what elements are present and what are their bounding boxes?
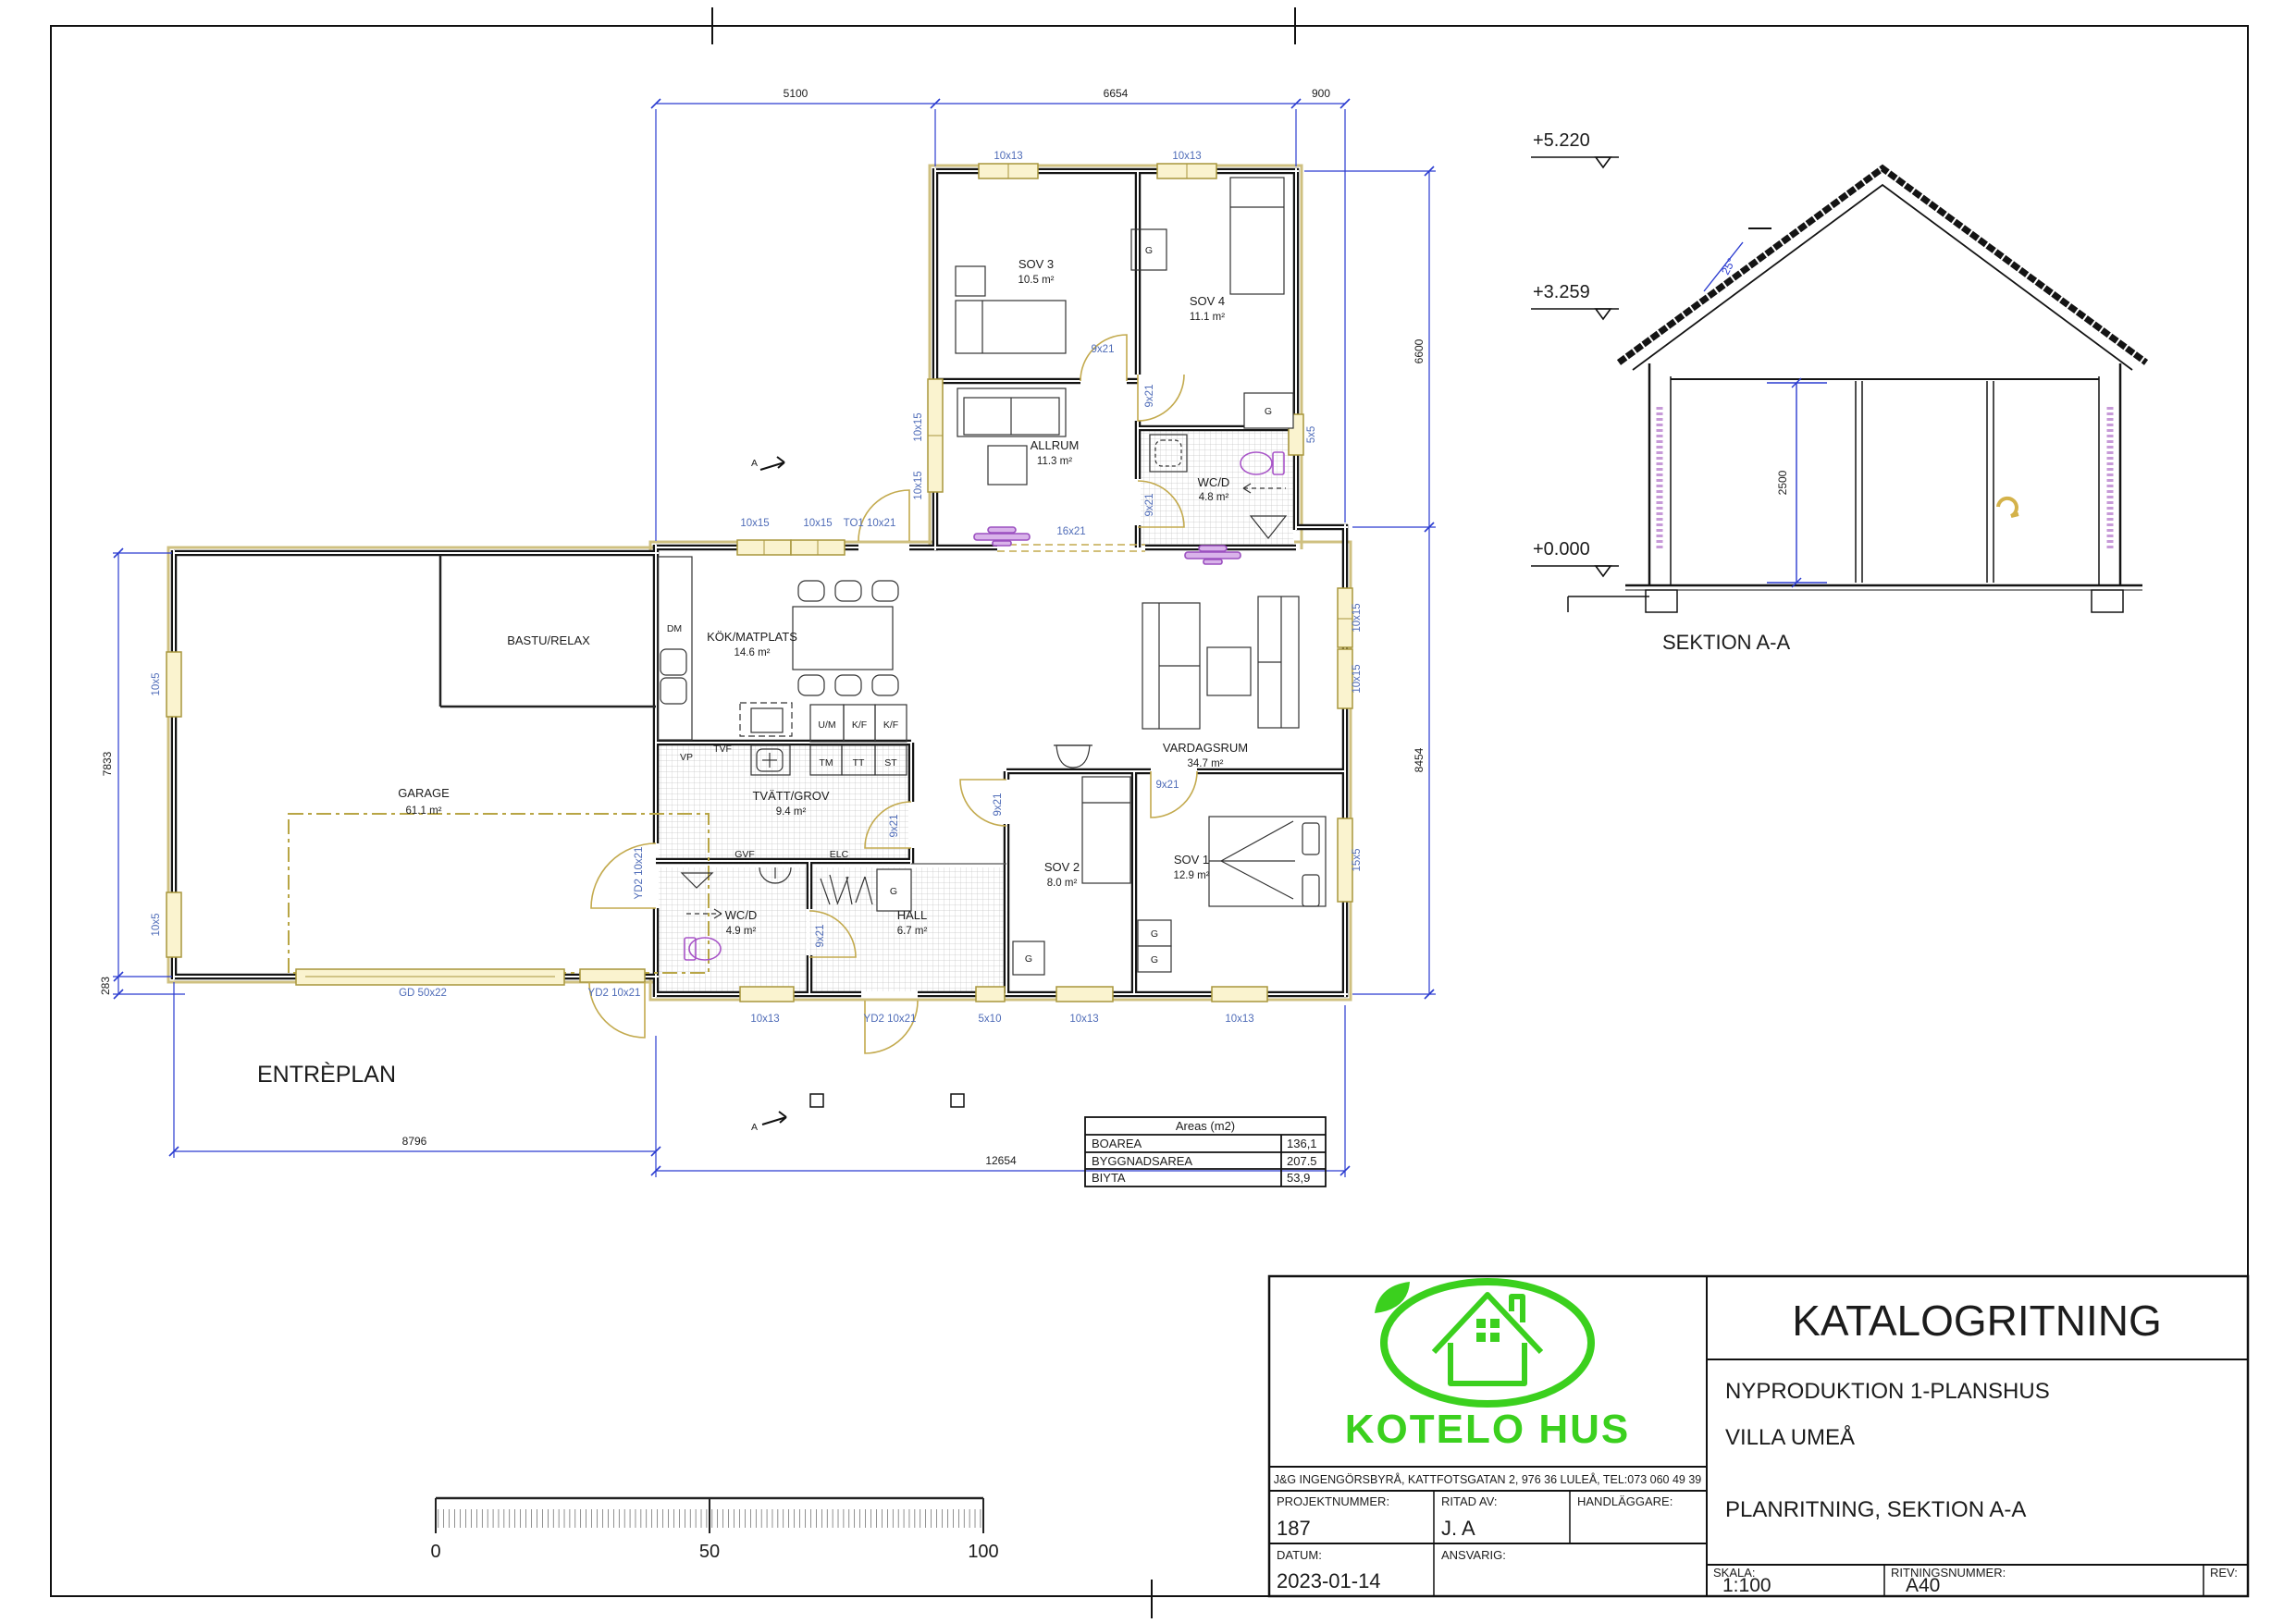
closet-g: G — [1151, 954, 1158, 965]
label-10x15: 10x15 — [913, 412, 924, 441]
dim-12654: 12654 — [985, 1154, 1017, 1167]
room-vardagsrum-area: 34.7 m² — [1188, 758, 1224, 769]
label-tt: TT — [853, 757, 865, 768]
areas-row-value: 207.5 — [1287, 1154, 1317, 1168]
dim-2500: 2500 — [1776, 470, 1789, 495]
room-sov2-area: 8.0 m² — [1047, 878, 1078, 889]
window-5x10 — [976, 987, 1005, 1002]
wall-insulation — [1660, 407, 2110, 550]
roof-tiles — [1619, 168, 2146, 363]
company-address: J&G INGENGÖRSBYRÅ, KATTFOTSGATAN 2, 976 … — [1274, 1472, 1702, 1486]
ansvarig-label: ANSVARIG: — [1441, 1548, 1506, 1562]
logo-text: KOTELO HUS — [1345, 1407, 1630, 1452]
label-dm: DM — [667, 623, 682, 634]
dim-6654: 6654 — [1104, 87, 1129, 100]
floor-plan: A A SOV 3 10.5 m² SOV 4 11.1 m² ALLRUM 1… — [99, 87, 1436, 1177]
logo-house-icon — [1434, 1295, 1541, 1383]
room-sov1-area: 12.9 m² — [1174, 870, 1210, 881]
room-wcd-lower-area: 4.9 m² — [726, 926, 757, 937]
room-wcd-lower: WC/D — [725, 908, 758, 922]
label-10x15: 10x15 — [803, 518, 832, 529]
room-sov3: SOV 3 — [1018, 257, 1054, 271]
title-block: KOTELO HUS J&G INGENGÖRSBYRÅ, KATTFOTSGA… — [1269, 1276, 2248, 1596]
section-view: +5.220 +3.259 +0.000 2500 25° SEKTION A-… — [1531, 130, 2146, 654]
company-logo: KOTELO HUS — [1345, 1282, 1630, 1452]
section-mark-a-top: A — [751, 458, 758, 469]
drawing-type-title: KATALOGRITNING — [1792, 1297, 2162, 1345]
label-15x5: 15x5 — [1352, 849, 1363, 872]
room-sov1: SOV 1 — [1174, 853, 1209, 867]
label-9x21: 9x21 — [1156, 780, 1179, 791]
footing — [2092, 590, 2123, 612]
level-ground: +0.000 — [1533, 539, 1590, 559]
dim-900: 900 — [1312, 87, 1330, 100]
areas-row-label: BYGGNADSAREA — [1092, 1154, 1192, 1168]
plan-title: ENTRÈPLAN — [257, 1061, 396, 1088]
room-sov4: SOV 4 — [1190, 294, 1225, 308]
footing — [1646, 590, 1677, 612]
room-tvatt-area: 9.4 m² — [776, 806, 807, 818]
label-10x5: 10x5 — [151, 673, 162, 696]
dim-6600: 6600 — [1413, 338, 1426, 363]
rev-label: REV: — [2210, 1566, 2238, 1580]
areas-row-label: BOAREA — [1092, 1137, 1142, 1150]
areas-table: Areas (m2) BOAREA 136,1 BYGGNADSAREA 207… — [1085, 1117, 1326, 1187]
label-yd2: YD2 10x21 — [864, 1014, 917, 1025]
label-kf: K/F — [883, 719, 898, 731]
label-tm: TM — [819, 757, 833, 768]
subtitle-line2: VILLA UMEÅ — [1725, 1424, 1855, 1450]
logo-house-windows — [1476, 1319, 1500, 1342]
label-10x13: 10x13 — [1069, 1014, 1098, 1025]
ritad-av-label: RITAD AV: — [1441, 1494, 1497, 1508]
room-vardagsrum: VARDAGSRUM — [1163, 741, 1248, 755]
label-9x21: 9x21 — [815, 925, 826, 948]
room-garage: GARAGE — [398, 786, 450, 800]
closet-g: G — [890, 886, 897, 897]
areas-title: Areas (m2) — [1176, 1119, 1235, 1133]
label-vp: VP — [680, 752, 693, 763]
label-kf: K/F — [852, 719, 867, 731]
window-10x13 — [1056, 987, 1113, 1002]
label-10x15: 10x15 — [913, 471, 924, 499]
label-10x15: 10x15 — [1352, 664, 1363, 693]
label-10x13: 10x13 — [750, 1014, 779, 1025]
label-gvf: GVF — [734, 849, 755, 860]
room-tvatt: TVÄTT/GROV — [752, 789, 829, 803]
vent-curl — [1998, 498, 2018, 516]
room-sov3-area: 10.5 m² — [1018, 275, 1055, 286]
label-to1: TO1 10x21 — [844, 518, 896, 529]
handlaggare-label: HANDLÄGGARE: — [1577, 1494, 1673, 1508]
room-allrum-area: 11.3 m² — [1037, 456, 1072, 467]
dim-7833: 7833 — [101, 751, 114, 776]
label-5x5: 5x5 — [1306, 426, 1317, 444]
label-9x21: 9x21 — [889, 815, 900, 838]
label-10x13: 10x13 — [994, 151, 1022, 162]
label-9x21: 9x21 — [1092, 344, 1115, 355]
dim-283: 283 — [99, 977, 112, 995]
dim-5100: 5100 — [784, 87, 809, 100]
room-kok-area: 14.6 m² — [734, 647, 771, 658]
label-10x15: 10x15 — [1352, 603, 1363, 632]
ritningsnummer-value: A40 — [1906, 1575, 1940, 1596]
datum-value: 2023-01-14 — [1277, 1569, 1381, 1592]
room-bastu: BASTU/RELAX — [507, 633, 590, 647]
label-5x10: 5x10 — [979, 1014, 1002, 1025]
room-hall-area: 6.7 m² — [897, 926, 928, 937]
door-yd2-south — [865, 1001, 918, 1053]
skala-value: 1:100 — [1722, 1575, 1771, 1596]
label-10x13: 10x13 — [1225, 1014, 1253, 1025]
window-10x5 — [167, 652, 181, 717]
label-yd2: YD2 10x21 — [634, 847, 645, 900]
projektnummer-label: PROJEKTNUMMER: — [1277, 1494, 1389, 1508]
closet-g: G — [1151, 928, 1158, 940]
window-10x15 — [1338, 588, 1352, 647]
room-wcd-upper: WC/D — [1198, 475, 1230, 489]
door-leaf-yd2 — [580, 969, 645, 982]
label-9x21: 9x21 — [1144, 494, 1155, 517]
room-kok: KÖK/MATPLATS — [707, 630, 797, 644]
areas-row-value: 53,9 — [1287, 1171, 1310, 1185]
label-elc: ELC — [830, 849, 849, 860]
drawing-canvas: A A SOV 3 10.5 m² SOV 4 11.1 m² ALLRUM 1… — [0, 0, 2296, 1623]
subtitle-line3: PLANRITNING, SEKTION A-A — [1725, 1497, 2026, 1522]
scale-100: 100 — [968, 1542, 998, 1562]
label-um: U/M — [818, 719, 835, 731]
level-markers: +5.220 +3.259 +0.000 — [1531, 130, 1619, 576]
label-16x21: 16x21 — [1056, 526, 1085, 537]
areas-row-value: 136,1 — [1287, 1137, 1317, 1150]
room-wcd-upper-area: 4.8 m² — [1199, 492, 1229, 503]
label-tvf: TVF — [713, 744, 732, 755]
label-gd: GD 50x22 — [399, 988, 447, 999]
label-10x5: 10x5 — [151, 914, 162, 937]
dim-8454: 8454 — [1413, 747, 1426, 772]
garage-floor — [176, 555, 654, 975]
scale-bar: 0 50 100 — [430, 1498, 998, 1562]
porch-post — [810, 1094, 823, 1107]
window-10x13 — [740, 987, 794, 1002]
door-to1-entry — [858, 490, 909, 541]
room-sov2: SOV 2 — [1044, 860, 1080, 874]
projektnummer-value: 187 — [1277, 1517, 1311, 1540]
label-st: ST — [884, 757, 897, 768]
label-10x15: 10x15 — [740, 518, 769, 529]
window-10x15 — [1338, 649, 1352, 708]
label-yd2: YD2 10x21 — [588, 988, 641, 999]
room-allrum: ALLRUM — [1031, 438, 1080, 452]
section-mark-a-bottom: A — [751, 1122, 758, 1133]
scale-50: 50 — [699, 1542, 720, 1562]
window-10x13 — [1212, 987, 1267, 1002]
areas-row-label: BIYTA — [1092, 1171, 1126, 1185]
label-9x21: 9x21 — [1144, 385, 1155, 408]
closet-g: G — [1145, 245, 1153, 256]
datum-label: DATUM: — [1277, 1548, 1322, 1562]
label-10x13: 10x13 — [1172, 151, 1201, 162]
porch-post — [951, 1094, 964, 1107]
dim-8796: 8796 — [402, 1135, 427, 1148]
room-sov4-area: 11.1 m² — [1190, 312, 1225, 323]
room-garage-area: 61.1 m² — [406, 805, 442, 817]
level-top: +5.220 — [1533, 130, 1590, 151]
closet-g: G — [1025, 953, 1032, 965]
drawing-sheet: A A SOV 3 10.5 m² SOV 4 11.1 m² ALLRUM 1… — [0, 0, 2296, 1623]
ritad-av-value: J. A — [1441, 1517, 1475, 1540]
window-15x5 — [1338, 818, 1352, 902]
label-9x21: 9x21 — [993, 793, 1004, 817]
scale-0: 0 — [430, 1542, 440, 1562]
section-title: SEKTION A-A — [1662, 631, 1790, 654]
closet-g: G — [1265, 406, 1272, 417]
roof-underside — [1633, 185, 2132, 370]
level-eave: +3.259 — [1533, 282, 1590, 302]
subtitle-line1: NYPRODUKTION 1-PLANSHUS — [1725, 1379, 2050, 1404]
ground-line — [1568, 596, 1649, 612]
room-hall: HALL — [897, 908, 928, 922]
window-10x5 — [167, 892, 181, 957]
